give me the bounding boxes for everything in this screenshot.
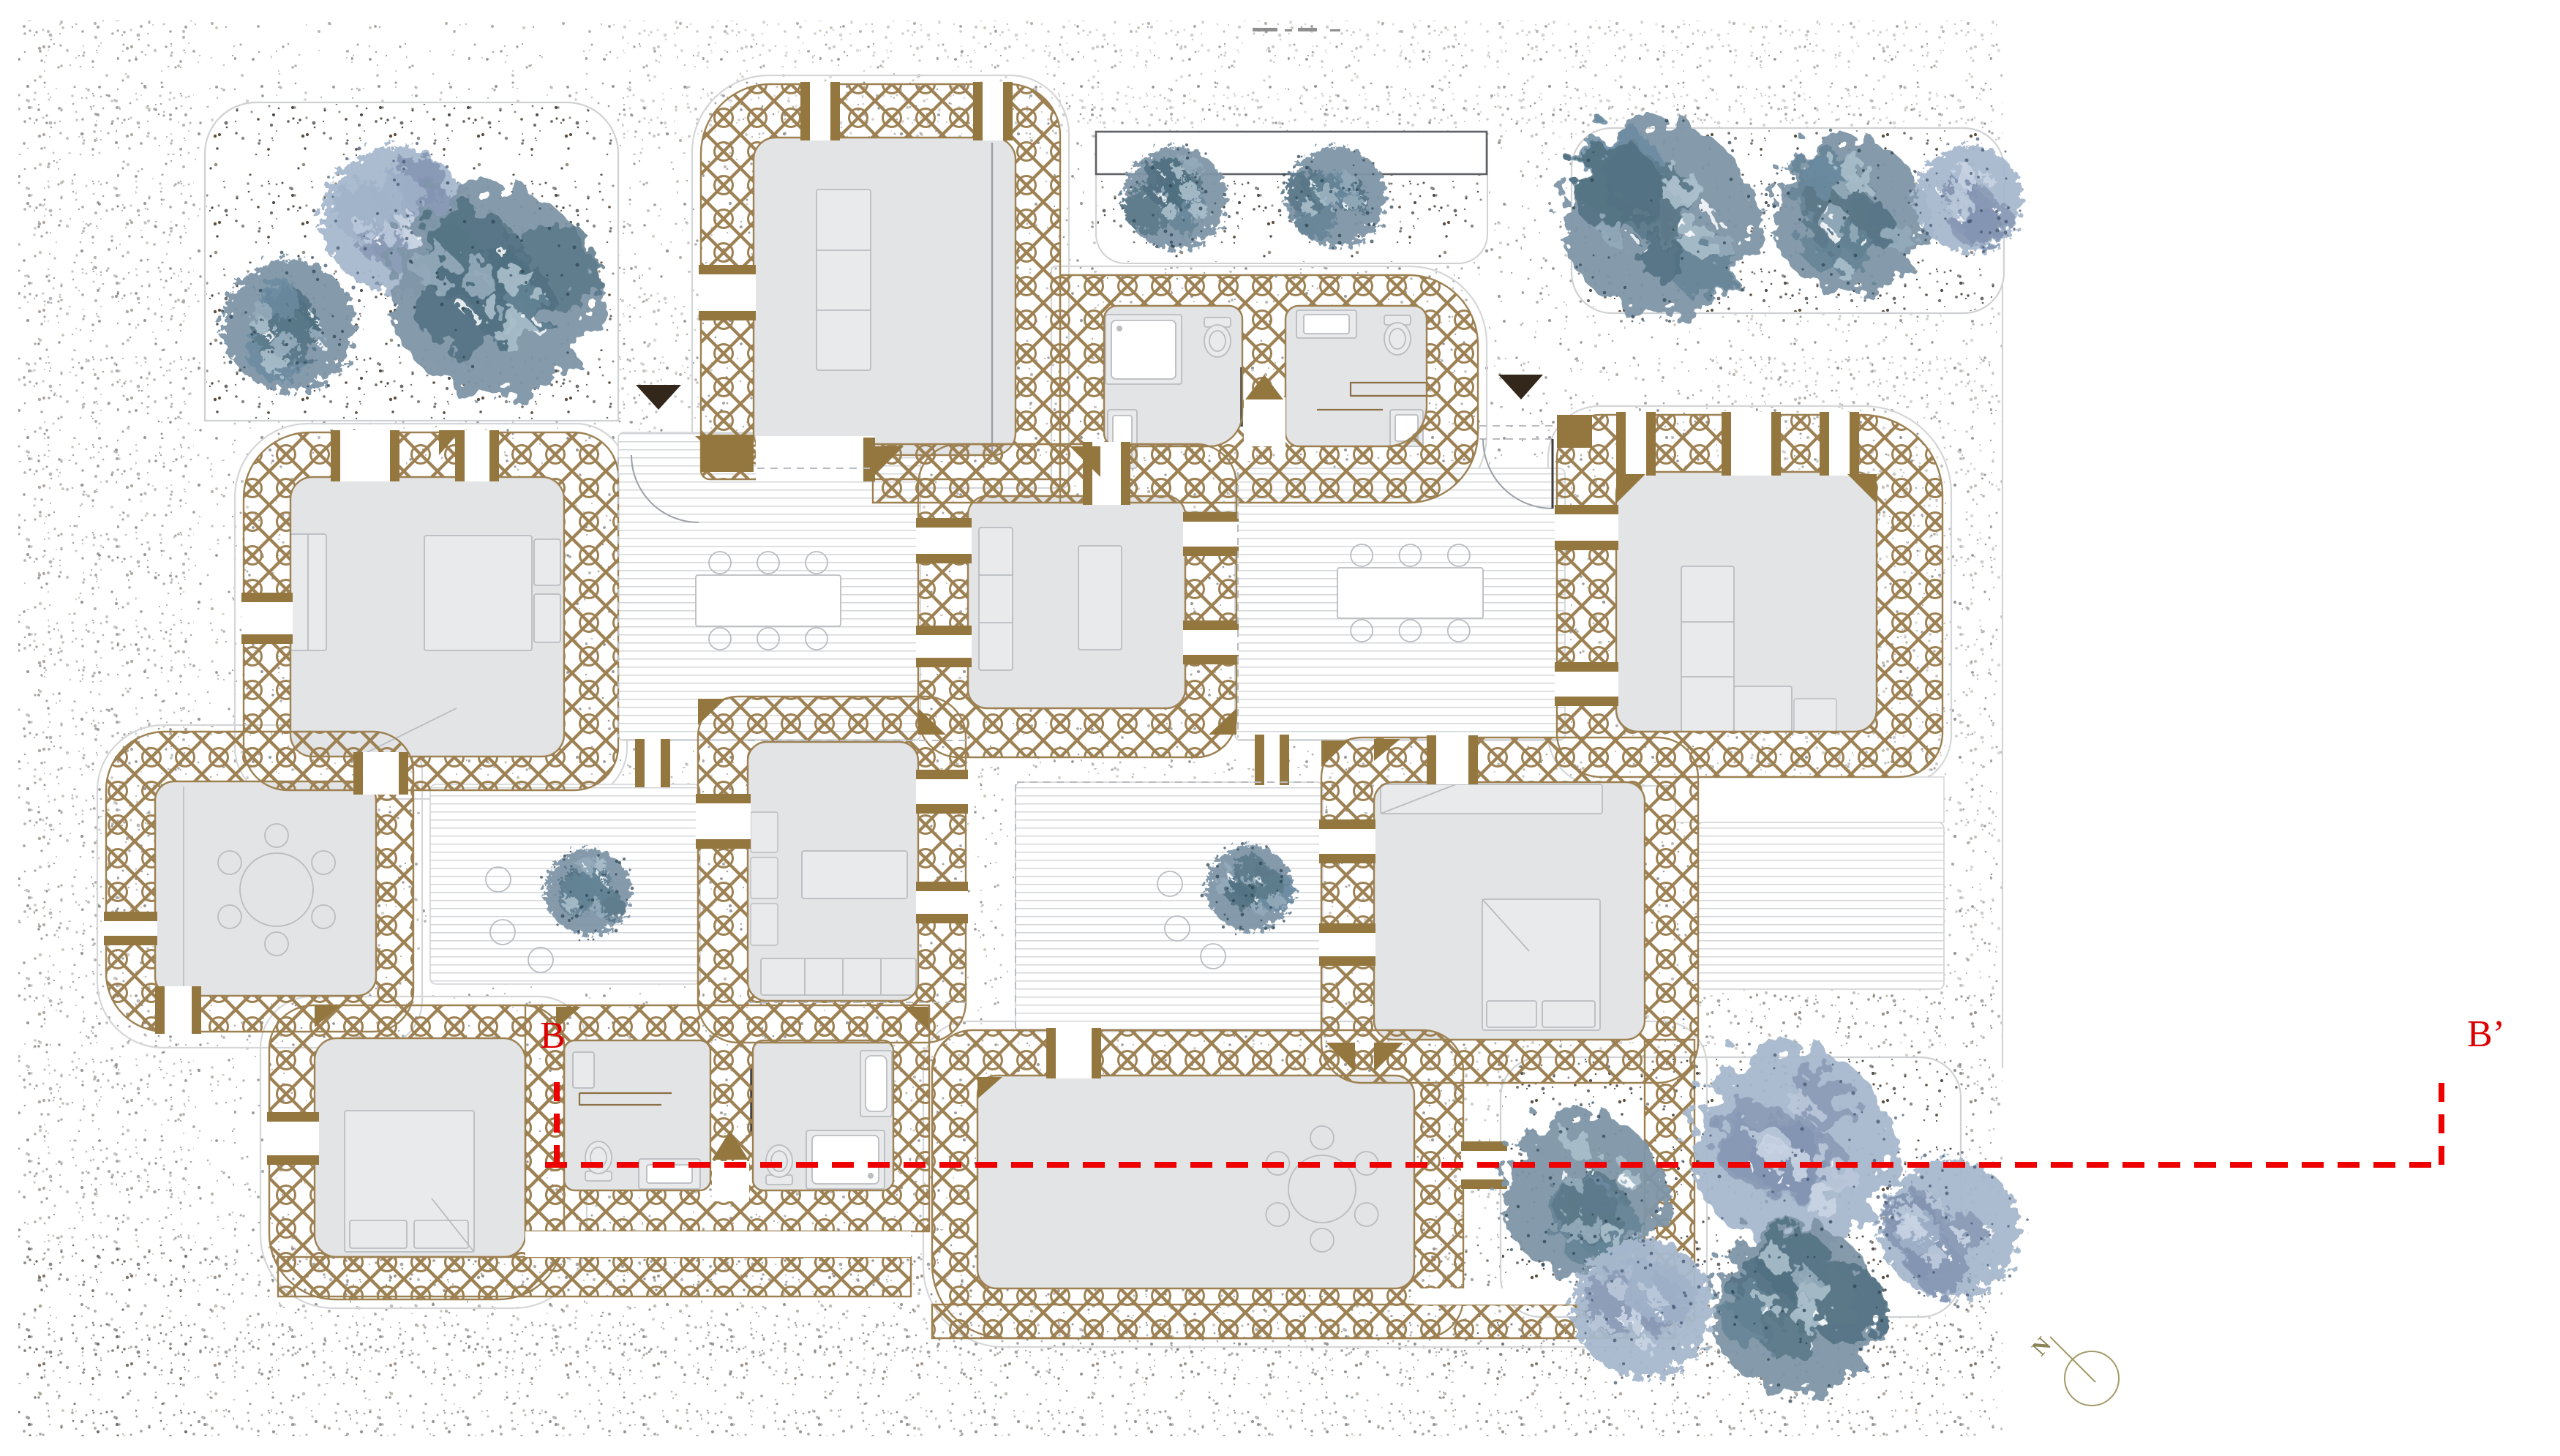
svg-text:B: B <box>540 1015 566 1057</box>
svg-text:B’: B’ <box>2467 1013 2505 1055</box>
